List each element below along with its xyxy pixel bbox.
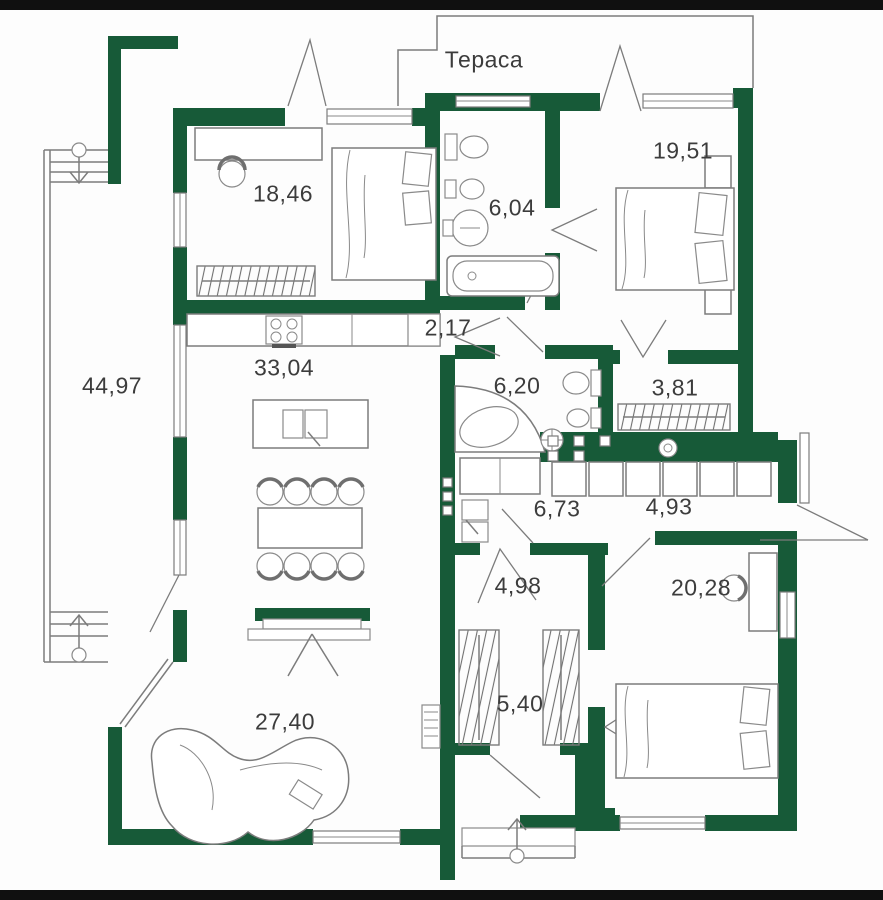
- stairs-top-icon: [50, 143, 108, 183]
- toilet-icon: [563, 370, 601, 396]
- wardrobe-icon: [543, 630, 579, 745]
- wardrobe-icon: [459, 630, 499, 745]
- cabinet-row-icon: [552, 462, 771, 496]
- room-label-bathroom-1: 6,04: [489, 195, 536, 222]
- radiator-icon: [422, 705, 440, 748]
- double-bed-icon: [616, 188, 734, 290]
- wardrobe-icon: [197, 266, 315, 296]
- entrance-door-leaf: [797, 505, 868, 540]
- door-leaf: [502, 509, 533, 543]
- room-label-bedroom-3: 20,28: [671, 575, 731, 602]
- window-icon: [620, 817, 705, 829]
- dining-chair-icon: [338, 479, 364, 505]
- washing-machine-icon: [659, 439, 677, 457]
- kitchen-sink-icon: [462, 500, 488, 542]
- door-swing: [621, 320, 666, 357]
- stove-icon: [266, 316, 302, 348]
- door-leaf: [507, 317, 543, 352]
- desk-icon: [749, 553, 777, 631]
- room-label-bedroom-2: 19,51: [653, 138, 713, 165]
- chair-icon: [219, 157, 245, 187]
- window-icon: [174, 193, 186, 247]
- wardrobe-icon: [618, 404, 730, 430]
- dining-chair-icon: [257, 479, 283, 505]
- window-icon: [327, 109, 412, 124]
- room-label-corridor-1: 2,17: [425, 315, 472, 342]
- room-label-terrace-left: 44,97: [82, 373, 142, 400]
- room-label-utility: 6,73: [534, 496, 581, 523]
- bidet-icon: [445, 179, 484, 199]
- room-label-terrace: Тераса: [445, 47, 523, 74]
- toilet-icon: [445, 134, 488, 160]
- dining-chair-icon: [257, 553, 283, 579]
- room-label-bathroom-2: 6,20: [494, 373, 541, 400]
- cabinet-icon: [460, 458, 540, 494]
- room-label-wardrobe-room: 3,81: [652, 375, 699, 402]
- room-label-hallway: 5,40: [497, 691, 544, 718]
- terrace-door-swing: [600, 46, 641, 111]
- sofa-icon: [151, 729, 348, 845]
- stairs-bottom-icon: [50, 612, 108, 662]
- room-label-kitchen: 33,04: [254, 355, 314, 382]
- room-label-corridor-2: 4,98: [495, 573, 542, 600]
- dining-chair-icon: [284, 479, 310, 505]
- terrace-left-outline: [44, 150, 108, 662]
- window-icon: [780, 592, 795, 638]
- dining-chair-icon: [311, 479, 337, 505]
- window-icon: [456, 96, 530, 107]
- dining-table-icon: [258, 508, 362, 548]
- window-icon: [174, 520, 186, 575]
- kitchen-island-icon: [253, 400, 368, 448]
- bidet-icon: [567, 408, 601, 428]
- dining-chair-icon: [338, 553, 364, 579]
- door-leaf: [602, 538, 650, 586]
- double-bed-icon: [332, 148, 436, 280]
- door-leaf: [490, 755, 540, 798]
- nightstand-icon: [705, 288, 731, 314]
- room-label-hall: 4,93: [646, 494, 693, 521]
- door-swing: [552, 209, 597, 251]
- bathtub-icon: [447, 256, 559, 296]
- window-icon: [174, 325, 186, 437]
- plan-drawing: [0, 0, 883, 900]
- floor-plan: Тераса 18,46 6,04 19,51 2,17 6,20 3,81 4…: [0, 0, 883, 900]
- window-icon: [643, 94, 733, 108]
- dining-chair-icon: [311, 553, 337, 579]
- room-label-bedroom-1: 18,46: [253, 181, 313, 208]
- kitchen-counter-icon: [187, 314, 440, 346]
- double-bed-icon: [616, 684, 778, 778]
- window-icon: [313, 831, 400, 843]
- washbasin-icon: [443, 210, 488, 246]
- dining-chair-icon: [284, 553, 310, 579]
- desk-icon: [195, 128, 322, 160]
- terrace-door-swing: [288, 40, 326, 106]
- porch-step: [800, 433, 809, 503]
- bay-window-icon: [120, 659, 173, 727]
- room-label-living-room: 27,40: [255, 709, 315, 736]
- tv-fireplace-icon: [248, 608, 370, 676]
